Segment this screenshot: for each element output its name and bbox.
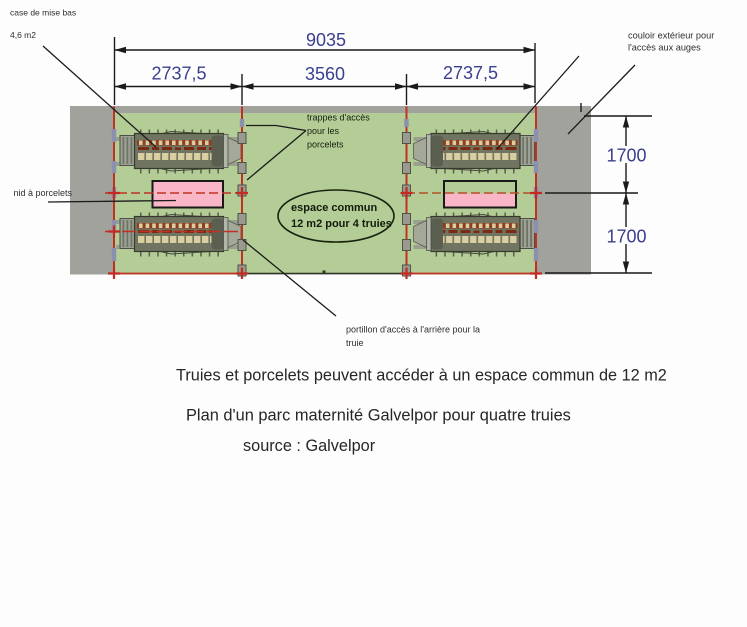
svg-text:case de mise bas: case de mise bas xyxy=(10,8,76,18)
svg-text:Truies et porcelets peuvent ac: Truies et porcelets peuvent accéder à un… xyxy=(176,367,667,385)
svg-text:trappes d'accès: trappes d'accès xyxy=(307,113,370,123)
svg-text:9035: 9035 xyxy=(306,30,346,50)
svg-text:Plan d'un parc maternité Galve: Plan d'un parc maternité Galvelpor pour … xyxy=(186,407,571,425)
svg-text:2737,5: 2737,5 xyxy=(151,64,206,84)
svg-text:1700: 1700 xyxy=(606,227,646,247)
svg-text:nid à porcelets: nid à porcelets xyxy=(14,188,73,198)
svg-text:pour les: pour les xyxy=(307,126,340,136)
svg-text:portillon d'accès à l'arrière: portillon d'accès à l'arrière pour la xyxy=(346,325,480,335)
svg-text:source : Galvelpor: source : Galvelpor xyxy=(243,437,376,455)
svg-text:porcelets: porcelets xyxy=(307,140,344,150)
svg-text:l'accès aux auges: l'accès aux auges xyxy=(628,43,701,53)
svg-text:4,6 m2: 4,6 m2 xyxy=(10,30,36,40)
svg-text:couloir extérieur pour: couloir extérieur pour xyxy=(628,31,714,41)
svg-text:3560: 3560 xyxy=(305,64,345,84)
svg-text:1700: 1700 xyxy=(606,146,646,166)
svg-text:12 m2 pour 4 truies: 12 m2 pour 4 truies xyxy=(291,218,392,230)
svg-text:2737,5: 2737,5 xyxy=(443,63,498,83)
svg-text:truie: truie xyxy=(346,338,364,348)
svg-text:espace commun: espace commun xyxy=(291,202,377,214)
